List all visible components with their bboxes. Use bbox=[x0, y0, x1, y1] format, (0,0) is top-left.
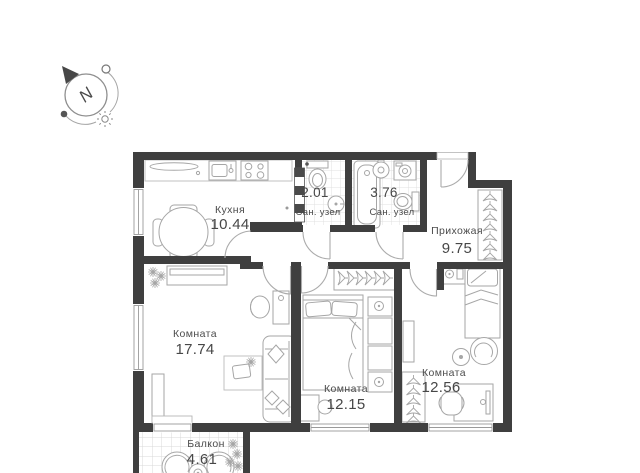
bedside-cabinet bbox=[368, 318, 392, 344]
rug-and-coffee-table bbox=[224, 356, 262, 390]
compass-dot-icon bbox=[61, 111, 68, 118]
bedroom-right-window bbox=[428, 423, 493, 433]
dining-table bbox=[153, 205, 214, 259]
desk-and-chair bbox=[251, 291, 290, 324]
bedroom-right-area: 12.56 bbox=[421, 379, 460, 396]
kitchen-label: Кухня bbox=[215, 204, 245, 216]
living-room-window bbox=[133, 304, 145, 371]
bathroom-small-area: 2.01 bbox=[301, 185, 328, 200]
floor-plan: N bbox=[0, 0, 640, 473]
bedroom-middle-window bbox=[310, 423, 370, 433]
dresser bbox=[403, 321, 414, 362]
bedside-cabinet bbox=[368, 346, 392, 370]
kitchen-window bbox=[133, 188, 145, 236]
living-room-area: 17.74 bbox=[175, 341, 214, 358]
bedroom-middle-label: Комната bbox=[324, 383, 368, 395]
kitchen-door bbox=[225, 231, 251, 258]
kitchen-area: 10.44 bbox=[210, 216, 249, 233]
bathroom-large-area: 3.76 bbox=[370, 185, 397, 200]
balcony-label: Балкон bbox=[187, 438, 225, 450]
bedroom-right-furniture bbox=[402, 266, 500, 423]
hallway-area: 9.75 bbox=[442, 240, 472, 257]
tub-chair bbox=[471, 338, 498, 365]
double-bed bbox=[303, 295, 363, 390]
nightstand-lamp-bottom bbox=[368, 372, 392, 392]
washing-machine-icon bbox=[394, 161, 416, 180]
nightstand-lamp-top bbox=[368, 297, 392, 316]
balcony-door-block bbox=[152, 416, 192, 433]
bathroom-large-door bbox=[376, 232, 403, 259]
stove-icon bbox=[241, 161, 268, 180]
tv-stand bbox=[152, 374, 164, 420]
bathroom-small-door bbox=[303, 232, 330, 259]
living-room-furniture bbox=[148, 266, 296, 422]
compass-ring-icon bbox=[102, 65, 110, 73]
living-room-door bbox=[263, 266, 291, 294]
balcony-area: 4.61 bbox=[187, 451, 217, 468]
single-bed bbox=[465, 266, 500, 338]
side-table bbox=[453, 349, 470, 366]
floor-plan-page: N bbox=[0, 0, 640, 473]
bedroom-right-door bbox=[410, 269, 437, 296]
bathroom-small-label: Сан. узел bbox=[296, 207, 341, 218]
kitchen-sink-icon bbox=[209, 161, 236, 180]
hallway-label: Прихожая bbox=[431, 225, 483, 237]
bathroom-large-label: Сан. узел bbox=[370, 207, 415, 218]
compass-sun-icon bbox=[97, 111, 113, 127]
sideboard bbox=[167, 266, 227, 285]
compass-rose: N bbox=[61, 65, 118, 127]
bedroom-right-label: Комната bbox=[422, 367, 466, 379]
kitchen-shelf bbox=[150, 163, 198, 171]
entrance-door bbox=[441, 160, 468, 187]
plant-icon bbox=[148, 267, 166, 288]
entrance-threshold bbox=[437, 152, 468, 161]
living-room-label: Комната bbox=[173, 328, 217, 340]
bedroom-middle-door bbox=[301, 266, 328, 293]
bedroom-middle-area: 12.15 bbox=[326, 396, 365, 413]
wardrobe bbox=[334, 266, 395, 290]
